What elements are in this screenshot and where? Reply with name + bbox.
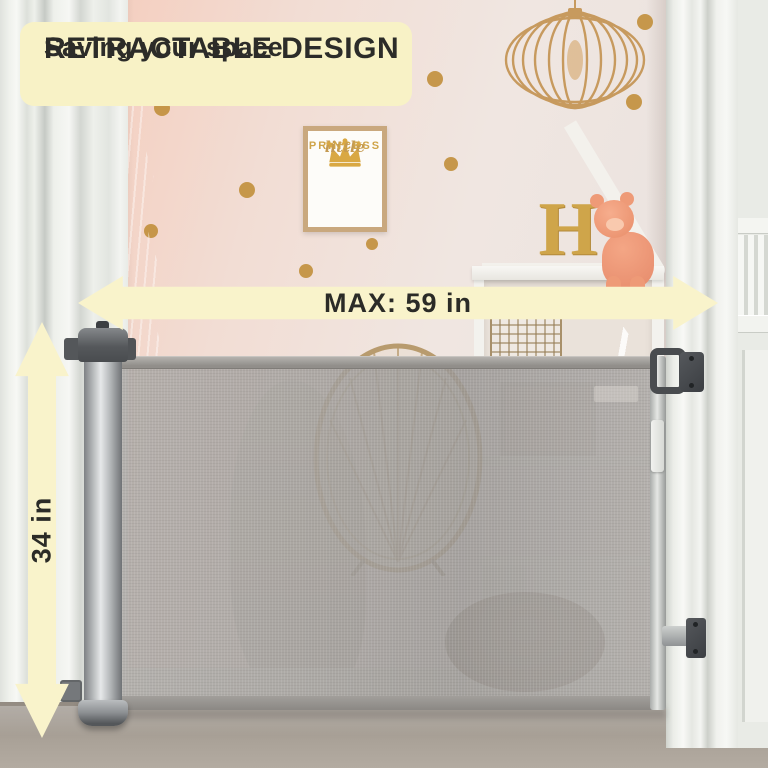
gate-handle (651, 420, 664, 472)
product-image: little PRINCESS ★ ★ ★ H (0, 0, 768, 768)
wainscot-panel (742, 350, 768, 722)
wainscot-rail (738, 218, 768, 234)
polka-dot (427, 71, 443, 87)
wainscot-rail (738, 315, 768, 333)
gate-brand-tag (594, 386, 638, 402)
bottom-latch-plate (686, 618, 706, 658)
gate-roller-post (84, 336, 122, 708)
polka-dot (239, 182, 255, 198)
height-label: 34 in (27, 497, 58, 564)
gate-edge-bar (650, 356, 666, 710)
pendant-lamp (500, 0, 650, 112)
top-latch-plate (680, 352, 704, 392)
banner-subtitle: Saving your space (44, 31, 283, 65)
frame-stars: ★ ★ ★ (325, 138, 366, 149)
gate-mesh (110, 360, 652, 710)
princess-frame: little PRINCESS ★ ★ ★ (303, 126, 387, 232)
gate-mesh-hem (110, 356, 652, 369)
polka-dot (444, 157, 458, 171)
polka-dot (366, 238, 378, 250)
width-label: MAX: 59 in (78, 276, 718, 330)
teddy-bear-muzzle (606, 218, 624, 231)
gate-mesh-hem (110, 696, 652, 710)
headline-banner: RETRACTABLE DESIGN Saving your space (20, 22, 412, 106)
height-measurement-arrow: 34 in (14, 322, 70, 738)
wainscot-balusters (738, 235, 768, 315)
gate-post-cap (78, 328, 128, 362)
width-measurement-arrow: MAX: 59 in (78, 276, 718, 330)
gate-post-base (78, 700, 128, 726)
